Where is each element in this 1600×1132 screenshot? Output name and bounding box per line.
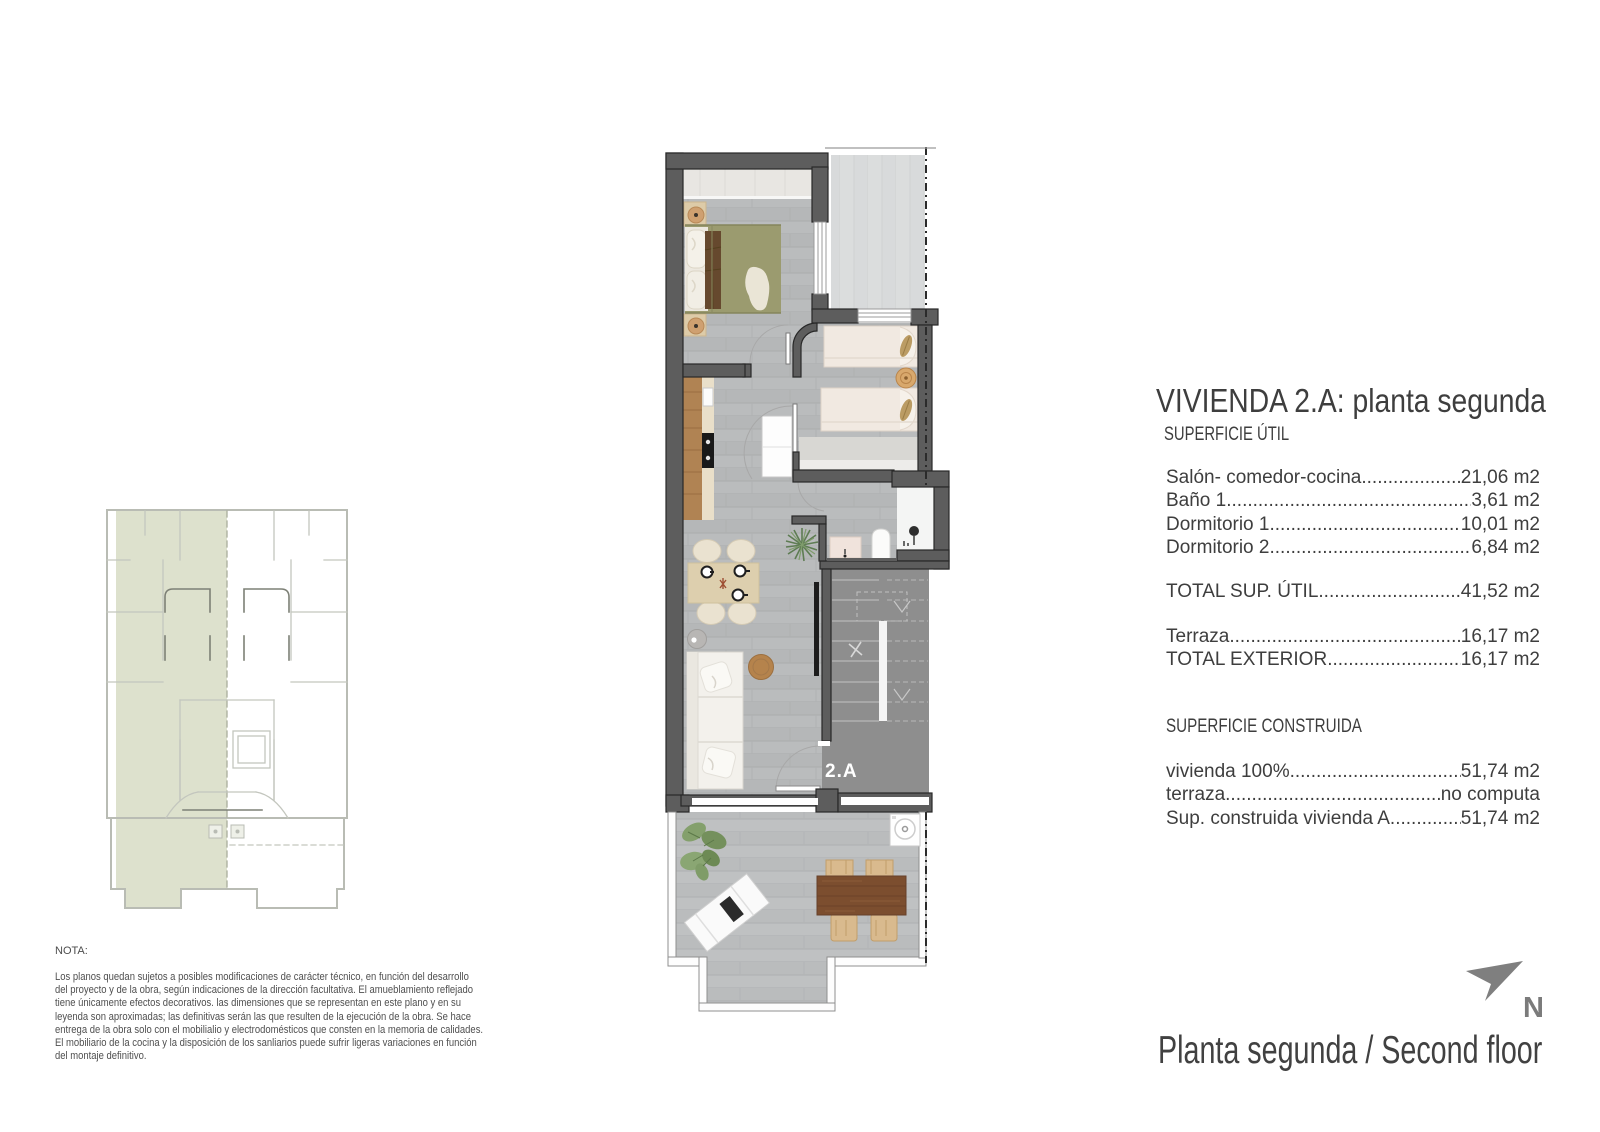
svg-text:2.A: 2.A xyxy=(825,761,858,782)
